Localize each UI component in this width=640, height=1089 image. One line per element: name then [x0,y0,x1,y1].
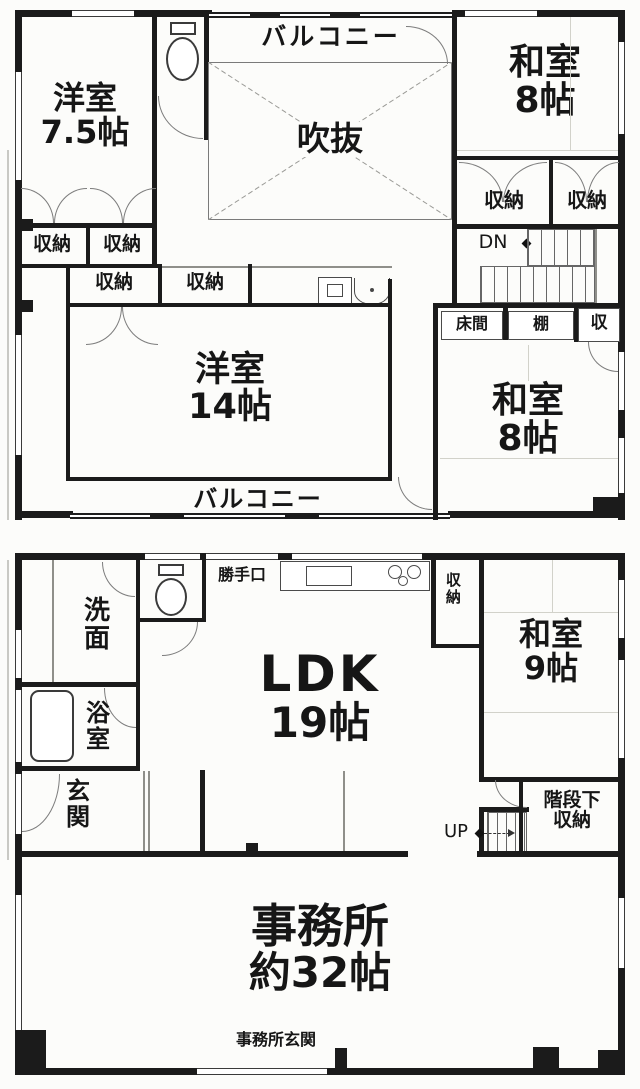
tatami-line [528,345,529,381]
tatami-line [484,712,618,713]
washbasin-icon [327,284,343,297]
corner-pier [593,497,625,517]
stove-icon [407,565,421,579]
window-mark [618,580,625,638]
door-arc [158,96,203,139]
room-label-senmen: 洗面 [80,596,108,652]
room-name: LDK [235,648,405,701]
door-arc [122,307,158,345]
window-mark [618,898,625,968]
room-label-yokushitsu: 浴室 [82,700,107,752]
wall-segment [202,556,206,622]
window-mark [618,42,625,134]
window-mark [618,352,625,410]
room-label-balcony-top: バルコニー [228,24,434,51]
wall-segment [285,513,319,519]
toilet-icon [170,22,196,35]
closet-line [162,266,248,268]
window-mark [15,335,22,455]
kitchen-sink-icon [306,566,352,586]
stairs-arrow-head [508,829,515,837]
door-arc [90,188,123,223]
entrance-door-gap [15,774,22,834]
room-size: 8帖 [458,420,598,458]
toilet-icon [166,37,199,81]
room-label-yoshitsu14: 洋室 14帖 [158,352,302,426]
tatami-line [552,560,553,612]
wall-segment [20,766,140,771]
wall-segment [519,779,523,853]
window-mark [15,895,22,1030]
room-name: 事務所 [218,902,422,951]
door-arc [102,562,135,597]
stairs-dn-label: DN [470,232,516,252]
toilet-icon [155,578,187,616]
closet-label: 収納 [444,572,460,606]
wall-segment [20,682,140,687]
wall-segment [15,264,160,268]
hall-line [252,266,392,268]
tatami-line [570,17,571,150]
wall-segment [248,264,252,307]
balcony-railing [70,513,450,519]
wall-segment [456,156,625,160]
corner-pier [15,219,33,231]
katteguchi-label: 勝手口 [207,567,277,584]
label-line: 階段下 [524,790,620,810]
room-label-washitsu8-se: 和室 8帖 [458,382,598,458]
window-mark [618,438,625,493]
wall-segment [477,851,625,857]
wall-segment [86,228,90,265]
corner-pier [15,300,33,312]
step-line [143,771,145,851]
door-arc [406,26,448,64]
window-mark [15,630,22,678]
tokonoma-label: 床間 [443,316,501,333]
sliding-door-office [197,1068,327,1075]
window-mark [465,10,537,17]
wall-segment [15,851,408,857]
bathtub-icon [30,690,74,762]
closet-label: 収納 [92,234,152,254]
closet-label: 収納 [162,272,248,292]
wall-segment [479,556,484,782]
tatami-line [457,150,618,151]
window-mark [15,72,22,180]
room-size: 約32帖 [218,951,422,996]
wall-segment [66,477,392,481]
door-arc [21,188,54,223]
window-mark [618,660,625,758]
room-size: 19帖 [235,701,405,746]
step-line [343,771,345,851]
corner-pier [335,1048,347,1068]
wall-segment [431,644,483,648]
closet-label: 収 [578,314,620,332]
door-arc [123,188,156,223]
scan-artifact [7,560,9,860]
tatami-line [440,458,618,459]
stairs-up-label: UP [437,822,475,841]
wall-segment [330,12,360,18]
room-label-ldk: LDK 19帖 [235,648,405,746]
room-name: 和室 [458,382,598,420]
closet-label: 収納 [20,234,84,254]
room-label-washitsu8-ne: 和室 8帖 [488,44,602,120]
door-arc [588,342,618,372]
wall-segment [433,303,438,520]
room-size: 14帖 [158,389,302,426]
closet-label: 収納 [552,190,622,211]
corner-pier [20,1030,46,1068]
step-line [148,771,150,851]
stairs-treads [480,266,595,303]
door-arc [54,188,87,223]
stairs-treads [527,229,595,266]
closet-label: 収納 [460,190,548,211]
room-label-kaidanshita: 階段下 収納 [524,790,620,830]
room-label-washitsu9: 和室 9帖 [492,618,610,686]
room-name: 和室 [492,618,610,652]
room-size: 8帖 [488,82,602,120]
room-label-balcony-bottom: バルコニー [178,487,338,512]
corner-pier [533,1047,559,1068]
window-mark [72,10,134,17]
scan-artifact [7,150,9,520]
window-mark [15,690,22,762]
room-name: 洋室 [25,82,145,116]
room-label-jimusho: 事務所 約32帖 [218,902,422,995]
closet-label: 収納 [70,272,158,292]
toilet-icon [158,564,184,576]
stair-edge [595,229,597,303]
room-size: 9帖 [492,652,610,686]
stove-icon [398,576,408,586]
wall-segment [15,511,73,518]
door-arc [22,774,60,832]
drain-dot [370,288,374,292]
wall-segment [66,303,70,481]
wall-segment [431,556,436,648]
room-label-yoshitsu75: 洋室 7.5帖 [25,82,145,150]
window-mark [145,553,200,560]
wall-segment [150,513,184,519]
room-size: 7.5帖 [25,116,145,150]
jimusho-genkan-label: 事務所玄関 [216,1032,336,1049]
door-arc [86,307,122,345]
wall-line [52,560,54,682]
sliding-door-katteguchi [206,553,278,560]
door-arc [162,622,198,656]
corner-pier [246,843,258,857]
room-label-fukinuke: 吹抜 [270,122,390,157]
window-mark [292,553,422,560]
corner-pier [598,1050,625,1075]
wall-segment [200,770,205,853]
room-label-genkan: 玄関 [62,778,87,830]
stairs-arrow [484,833,510,834]
label-line: 収納 [524,810,620,830]
wall-segment [152,228,157,268]
room-name: 洋室 [158,352,302,389]
floor-plan: 洋室 7.5帖 バルコニー 吹抜 和室 8帖 収納 [0,0,640,1089]
wall-segment [388,279,392,481]
room-name: 和室 [488,44,602,82]
shelf-label: 棚 [510,316,572,333]
door-arc [398,477,432,510]
wall-segment [136,682,140,770]
wall-segment [250,12,280,18]
wall-segment [136,560,140,684]
tatami-line [484,612,618,613]
